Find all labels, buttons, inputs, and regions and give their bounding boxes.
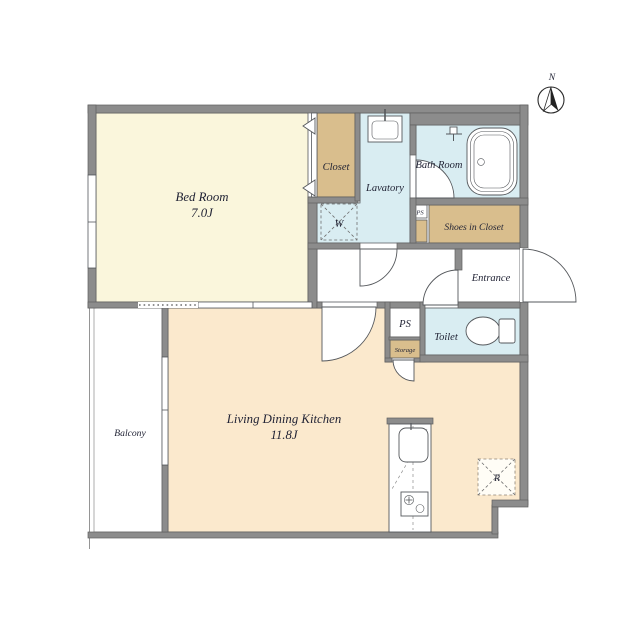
label-closet: Closet [323, 162, 351, 173]
wall-ps-col-left [385, 302, 390, 362]
wall-closet-lavatory [355, 113, 360, 201]
floor-plan: Bed Room 7.0J Living Dining Kitchen 11.8… [0, 0, 640, 640]
sliding-door-bedroom-ldk [198, 302, 312, 308]
wall-balcony-upper [162, 308, 168, 357]
wall-hall-top-left [308, 243, 360, 249]
room-balcony [94, 308, 162, 532]
wall-hall-bottom-a [317, 302, 322, 308]
shower-faucet-icon [450, 127, 457, 134]
label-north: N [548, 72, 556, 83]
window-bedroom-left [88, 175, 96, 268]
wall-lav-bath-lower [410, 198, 416, 243]
wall-hall-bottom-c [458, 302, 520, 308]
label-bedroom: Bed Room [176, 190, 229, 204]
label-ps-lower: PS [398, 319, 411, 330]
label-ps-upper: PS [415, 210, 424, 217]
label-ldk-size: 11.8J [270, 428, 298, 442]
label-storage: Storage [395, 347, 416, 354]
toilet-tank-icon [499, 319, 515, 343]
label-entrance: Entrance [471, 273, 511, 284]
wall-right-upper [520, 105, 528, 248]
wall-hall-bottom-b [377, 302, 423, 308]
stove-icon [401, 492, 428, 516]
label-bedroom-size: 7.0J [191, 206, 214, 220]
wall-ps-col-bottom-a [385, 358, 392, 362]
label-refrigerator: R [493, 473, 500, 484]
wall-ps-col-right [420, 302, 425, 362]
wall-hall-top-right [397, 243, 520, 249]
wall-balcony-lower [162, 465, 168, 532]
label-bathroom: Bath Room [416, 160, 463, 171]
kitchen-sink-icon [399, 428, 428, 462]
label-shoes-closet: Shoes in Closet [444, 222, 503, 233]
wall-lav-bath-upper [410, 125, 416, 155]
label-ldk: Living Dining Kitchen [226, 412, 341, 426]
wall-bath-bottom [410, 198, 528, 205]
sliding-window-balcony [162, 357, 168, 465]
room-closet [317, 113, 355, 197]
wall-left-upper [88, 105, 96, 175]
wall-notch-horizontal [492, 500, 528, 507]
toilet-bowl-icon [466, 317, 500, 345]
bathtub-icon [467, 128, 517, 195]
wall-toilet-bottom [420, 355, 528, 362]
label-lavatory: Lavatory [365, 183, 404, 194]
room-floors [90, 113, 521, 549]
wall-notch-vertical [492, 507, 498, 534]
wall-bottom [88, 532, 498, 538]
wall-bedroom-right [308, 197, 317, 308]
label-washer: W [335, 219, 345, 230]
wall-bath-top [410, 113, 528, 125]
wall-closet-bottom [308, 197, 358, 203]
north-compass-icon [538, 87, 564, 113]
wall-kitchen-stub [387, 418, 433, 424]
wall-right-lower [520, 302, 528, 505]
label-toilet: Toilet [434, 332, 459, 343]
wall-top [88, 105, 528, 113]
floor-plan-drawing: Bed Room 7.0J Living Dining Kitchen 11.8… [0, 0, 640, 640]
label-balcony: Balcony [114, 428, 146, 439]
door-entrance [523, 249, 576, 302]
wall-ps-storage-divider [389, 337, 420, 340]
wall-entrance-stub [455, 249, 462, 270]
